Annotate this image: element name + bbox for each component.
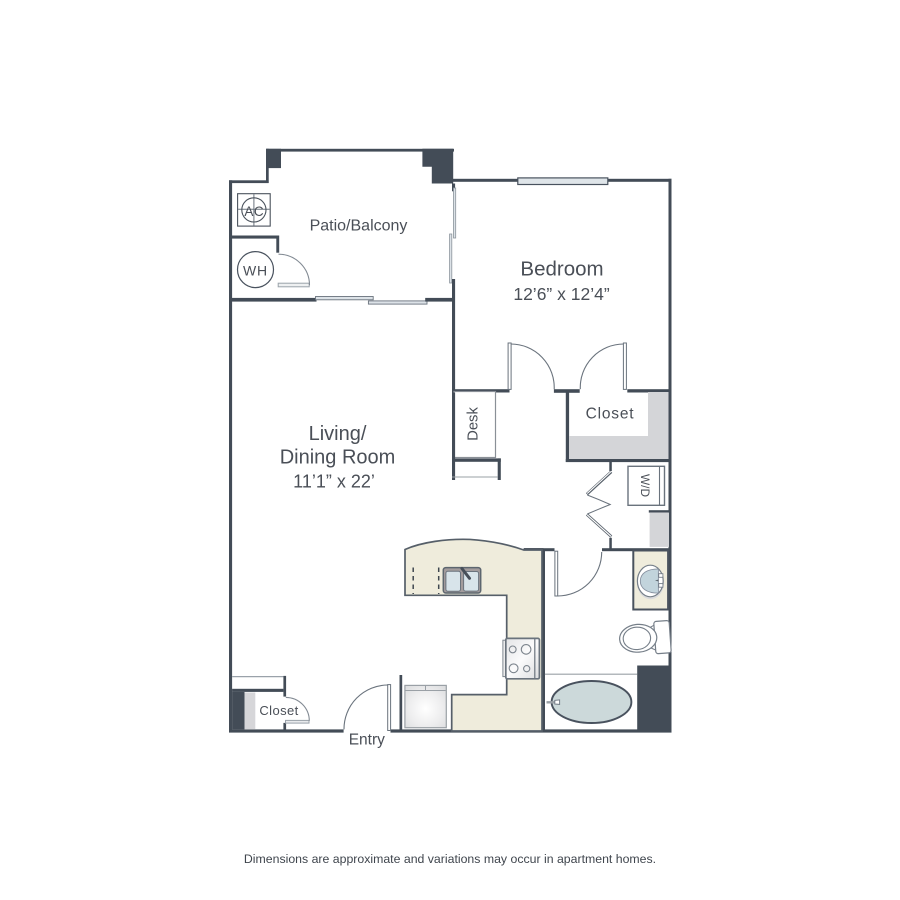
svg-text:Entry: Entry bbox=[349, 732, 385, 749]
svg-text:AC: AC bbox=[244, 204, 264, 219]
svg-text:12’6” x 12’4”: 12’6” x 12’4” bbox=[513, 284, 609, 304]
svg-text:Dimensions are approximate and: Dimensions are approximate and variation… bbox=[244, 852, 656, 866]
svg-text:Dining Room: Dining Room bbox=[280, 447, 396, 469]
svg-text:Patio/Balcony: Patio/Balcony bbox=[310, 218, 408, 235]
svg-text:Closet: Closet bbox=[259, 703, 298, 718]
svg-text:Bedroom: Bedroom bbox=[520, 258, 603, 281]
svg-text:W/D: W/D bbox=[638, 474, 652, 497]
svg-text:Desk: Desk bbox=[466, 407, 482, 441]
svg-text:WH: WH bbox=[243, 262, 268, 278]
svg-text:Living/: Living/ bbox=[309, 423, 367, 445]
svg-text:Closet: Closet bbox=[586, 406, 635, 423]
svg-text:11’1” x 22’: 11’1” x 22’ bbox=[293, 472, 375, 492]
